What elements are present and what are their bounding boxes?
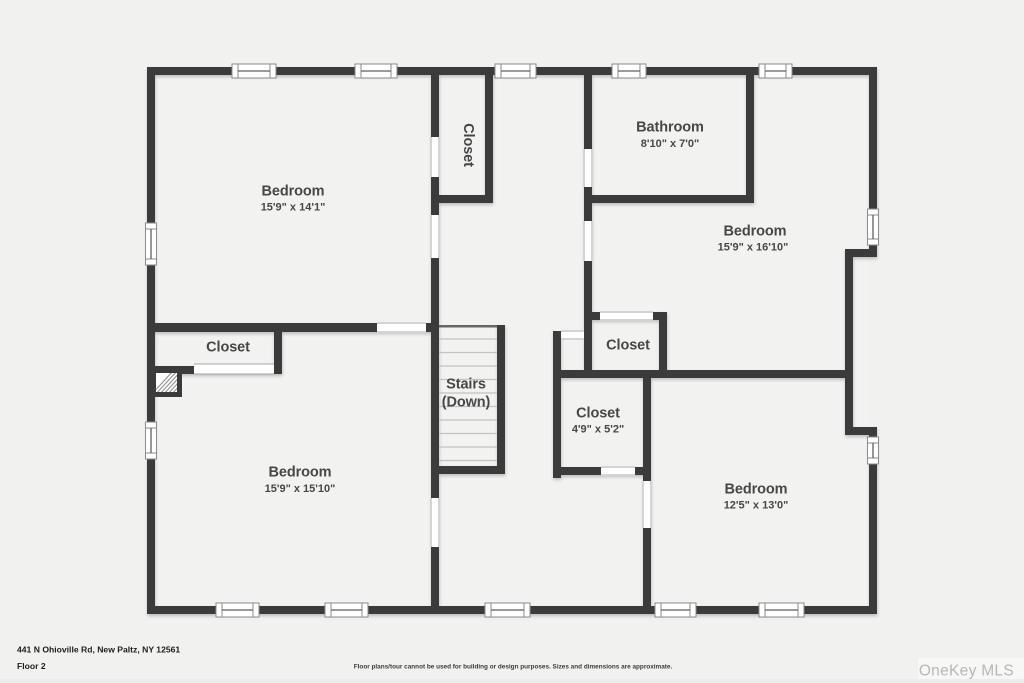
svg-text:Bedroom: Bedroom	[262, 184, 325, 200]
svg-text:Floor plans/tour cannot be use: Floor plans/tour cannot be used for buil…	[354, 664, 673, 671]
svg-text:Closet: Closet	[606, 338, 650, 354]
svg-text:Bedroom: Bedroom	[724, 224, 787, 240]
svg-text:Closet: Closet	[576, 406, 620, 422]
svg-text:Closet: Closet	[460, 123, 476, 167]
svg-text:8'10" x 7'0": 8'10" x 7'0"	[641, 138, 699, 150]
svg-text:Bedroom: Bedroom	[269, 465, 332, 481]
svg-text:15'9" x 14'1": 15'9" x 14'1"	[261, 202, 326, 214]
svg-text:15'9" x 16'10": 15'9" x 16'10"	[718, 242, 789, 254]
svg-text:441 N Ohioville Rd, New Paltz,: 441 N Ohioville Rd, New Paltz, NY 12561	[17, 645, 180, 655]
svg-text:15'9" x 15'10": 15'9" x 15'10"	[265, 483, 336, 495]
svg-text:(Down): (Down)	[442, 395, 491, 411]
svg-text:Floor 2: Floor 2	[17, 661, 46, 671]
svg-text:12'5" x 13'0": 12'5" x 13'0"	[724, 500, 789, 512]
svg-text:Bedroom: Bedroom	[725, 482, 788, 498]
svg-text:Bathroom: Bathroom	[636, 120, 704, 136]
svg-text:Closet: Closet	[206, 340, 250, 356]
svg-text:4'9" x 5'2": 4'9" x 5'2"	[572, 424, 624, 436]
svg-text:Stairs: Stairs	[446, 377, 486, 393]
svg-text:OneKey MLS: OneKey MLS	[919, 663, 1014, 680]
